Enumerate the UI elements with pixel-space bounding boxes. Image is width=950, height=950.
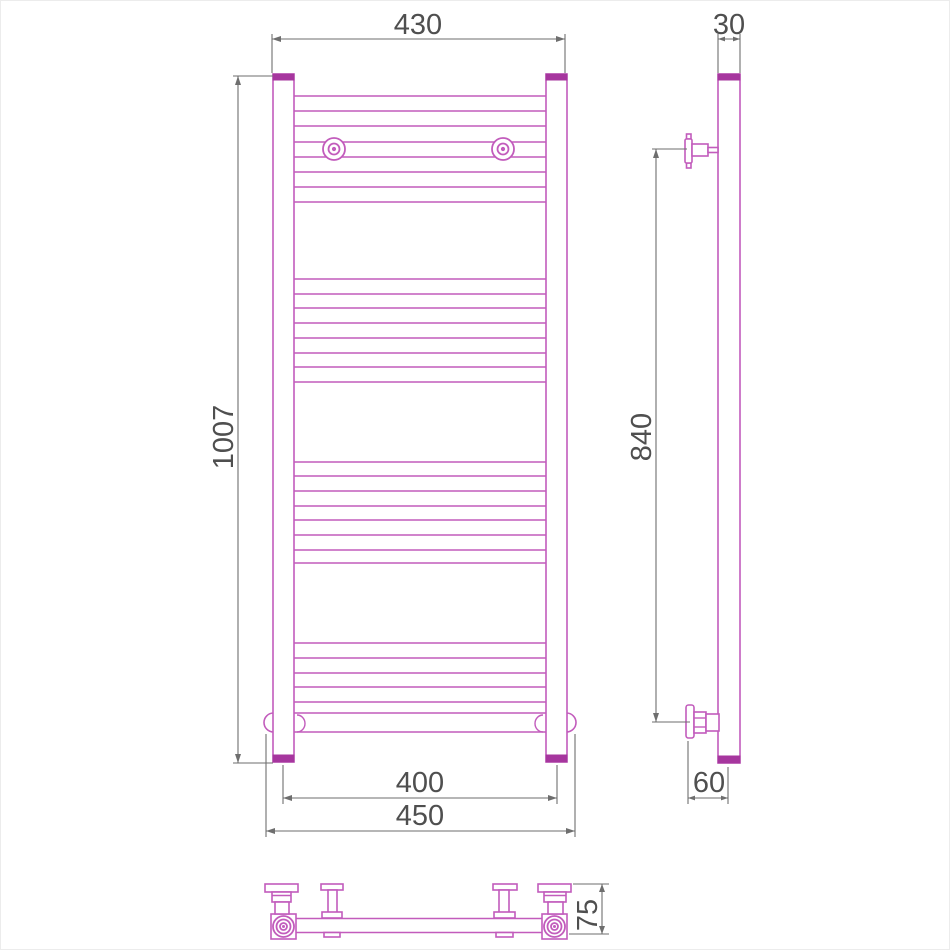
dimension-75: 75 — [569, 884, 609, 934]
dimension-30: 30 — [713, 9, 745, 73]
dim-label-840: 840 — [626, 413, 658, 461]
dim-label-1007: 1007 — [208, 405, 240, 470]
dim-label-75: 75 — [572, 899, 604, 931]
mounting-bracket-left — [323, 138, 345, 160]
wall-bracket-bottom — [686, 705, 719, 738]
side-profile-bar — [718, 74, 740, 763]
wall-bracket-top — [685, 134, 718, 168]
right-post — [535, 74, 567, 762]
dimension-1007: 1007 — [208, 76, 273, 763]
towel-rungs — [294, 96, 546, 702]
bottom-tube — [296, 919, 542, 933]
dimension-430: 430 — [272, 9, 565, 73]
valve-right — [493, 884, 517, 937]
wall-anchor-left — [265, 884, 298, 914]
dimension-840: 840 — [626, 149, 690, 722]
wall-anchor-right — [538, 884, 571, 914]
dim-label-60: 60 — [693, 767, 725, 799]
bottom-collector — [264, 713, 576, 732]
technical-drawing-page: 430 1007 400 450 30 — [0, 0, 950, 950]
dimension-400: 400 — [283, 765, 557, 804]
dim-label-30: 30 — [713, 9, 745, 41]
dim-label-400: 400 — [396, 767, 444, 799]
dim-label-450: 450 — [396, 800, 444, 832]
side-view — [685, 74, 740, 763]
left-post — [273, 74, 305, 762]
front-view — [264, 74, 576, 762]
valve-left — [321, 884, 343, 937]
corner-fitting-left — [271, 914, 296, 939]
towel-rail-drawing: 430 1007 400 450 30 — [1, 1, 949, 949]
corner-fitting-right — [542, 914, 567, 939]
bottom-view — [265, 884, 571, 939]
mounting-bracket-right — [492, 138, 514, 160]
dim-label-430: 430 — [394, 9, 442, 41]
